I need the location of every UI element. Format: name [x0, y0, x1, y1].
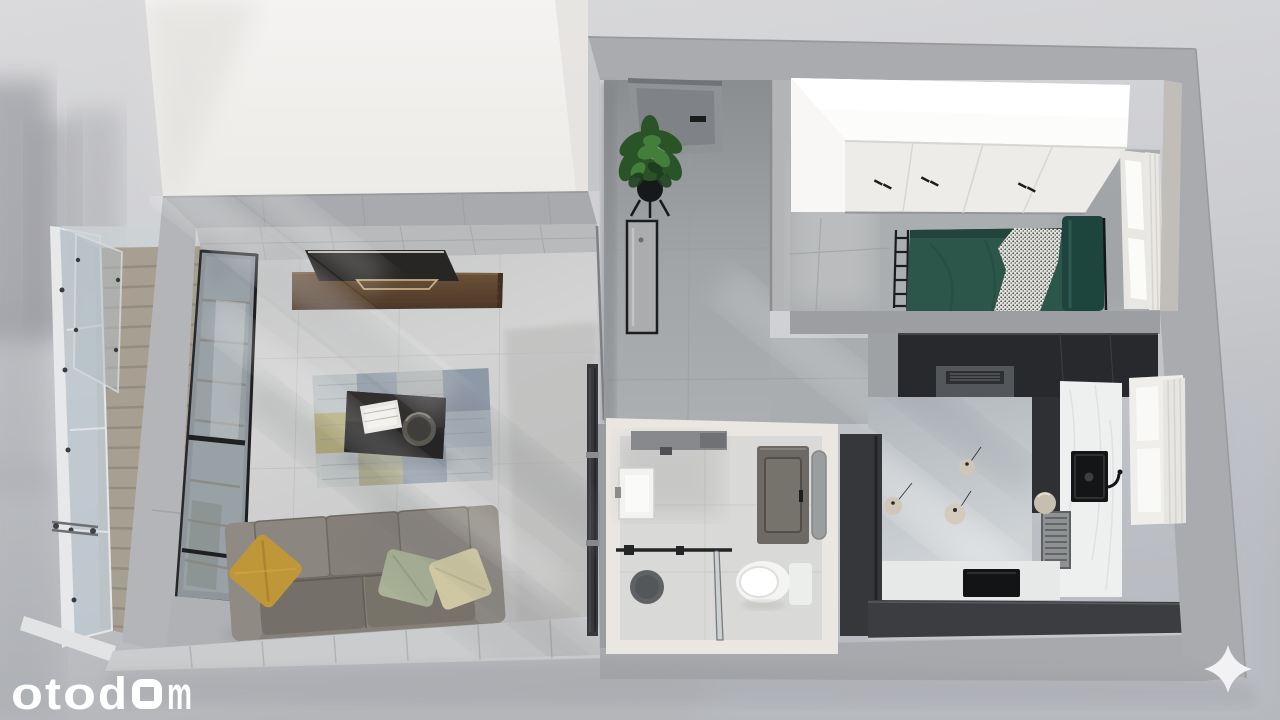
svg-text:t: t — [45, 668, 61, 719]
svg-text:m: m — [167, 668, 192, 719]
svg-text:o: o — [11, 668, 43, 719]
svg-text:d: d — [98, 668, 127, 719]
svg-text:o: o — [63, 668, 96, 719]
